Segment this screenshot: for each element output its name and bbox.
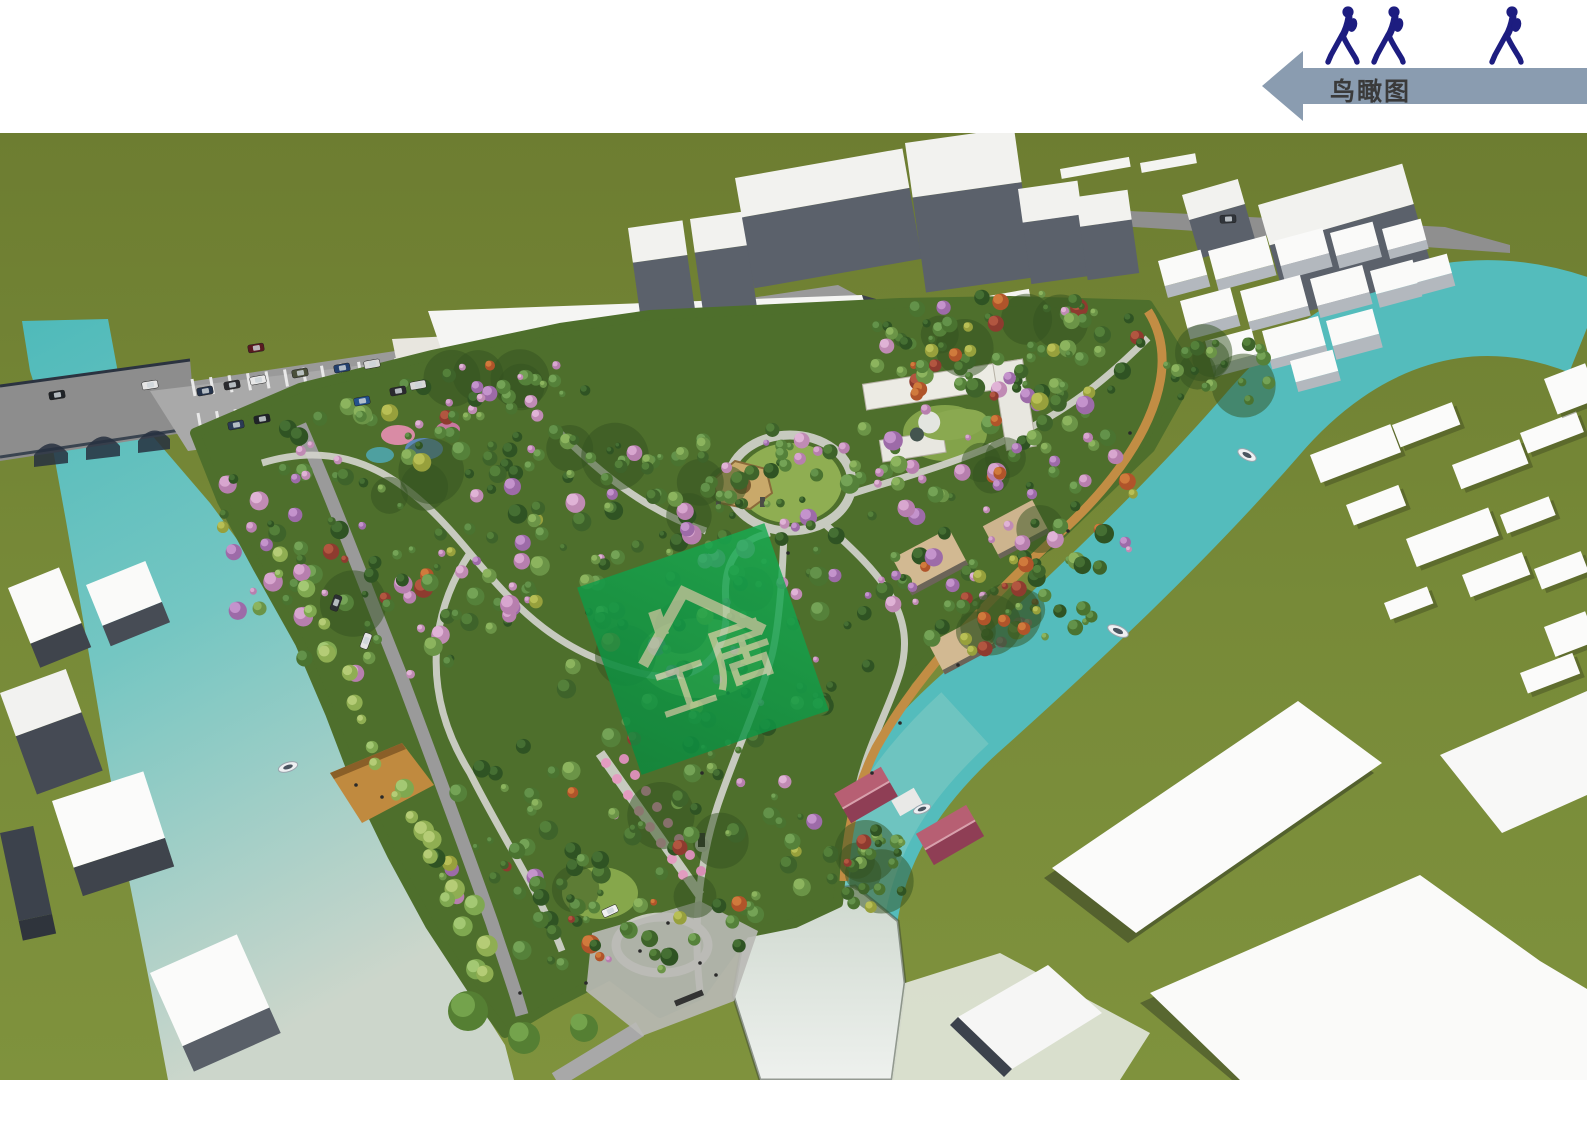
person-figure <box>698 961 702 965</box>
person-figure <box>1128 431 1132 435</box>
person-figure <box>714 973 718 977</box>
person-figure <box>666 921 670 925</box>
person-figure <box>956 663 960 667</box>
person-figure <box>870 771 874 775</box>
person-figure <box>786 551 790 555</box>
person-figure <box>898 721 902 725</box>
building-block <box>905 133 1035 293</box>
header-banner <box>0 0 1587 133</box>
person-figure <box>638 949 642 953</box>
left-arrow-banner <box>1262 51 1587 121</box>
aerial-render-image: 工 居 <box>0 133 1587 1080</box>
walking-person-icon <box>1374 6 1405 62</box>
view-title-label: 鸟瞰图 <box>1330 72 1411 108</box>
person-figure <box>700 771 704 775</box>
walking-person-icon <box>1492 6 1523 62</box>
person-figure <box>518 991 522 995</box>
person-figure <box>354 783 358 787</box>
person-figure <box>584 981 588 985</box>
walking-person-icon <box>1328 6 1359 62</box>
car <box>1220 215 1236 224</box>
person-figure <box>1066 529 1070 533</box>
presentation-page: 鸟瞰图 <box>0 0 1587 1122</box>
person-figure <box>380 795 384 799</box>
